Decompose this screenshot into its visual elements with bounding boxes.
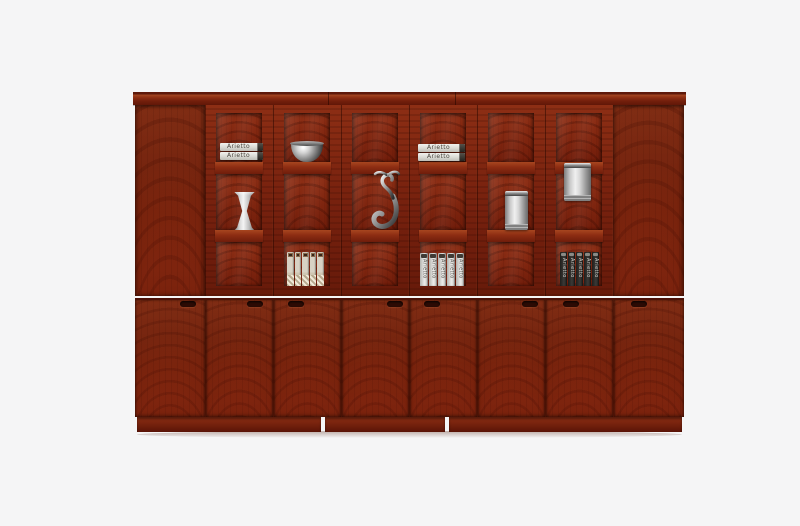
glass-door-1	[205, 105, 273, 296]
door-handle	[288, 301, 304, 307]
shelf-rail	[419, 230, 467, 242]
glass-pane	[556, 174, 602, 230]
plinth-segment	[449, 417, 682, 432]
glass-sheen	[488, 113, 534, 162]
glass-sheen	[216, 242, 262, 286]
glass-sheen	[556, 174, 602, 230]
shelf-rail	[487, 162, 535, 174]
lower-door-1	[135, 300, 205, 417]
glass-sheen	[284, 174, 330, 230]
glass-sheen	[420, 174, 466, 230]
glass-sheen	[216, 174, 262, 230]
lower-door-5	[409, 300, 477, 417]
glass-pane	[556, 113, 602, 162]
glass-sheen	[216, 113, 262, 162]
glass-pane	[488, 174, 534, 230]
glass-pane	[216, 113, 262, 162]
glass-pane	[216, 174, 262, 230]
door-handle	[247, 301, 263, 307]
glass-pane	[352, 174, 398, 230]
glass-sheen	[284, 242, 330, 286]
glass-sheen	[352, 174, 398, 230]
shelf-rail	[555, 162, 603, 174]
glass-sheen	[420, 113, 466, 162]
lower-door-4	[341, 300, 409, 417]
glass-pane	[556, 242, 602, 286]
upper-section	[135, 105, 684, 296]
glass-sheen	[352, 113, 398, 162]
lower-door-6	[477, 300, 545, 417]
glass-door-2	[273, 105, 341, 296]
molding-unit-seam	[328, 92, 329, 105]
shelf-rail	[215, 230, 263, 242]
glass-pane	[352, 242, 398, 286]
glass-sheen	[488, 242, 534, 286]
glass-pane	[284, 242, 330, 286]
glass-door-6	[545, 105, 613, 296]
product-photo: Arietto Arietto	[0, 0, 800, 526]
crown-molding	[133, 92, 686, 105]
glass-pane	[420, 242, 466, 286]
glass-door-5	[477, 105, 545, 296]
glass-pane	[216, 242, 262, 286]
glass-door-4	[409, 105, 477, 296]
shelf-rail	[215, 162, 263, 174]
door-handle	[180, 301, 196, 307]
glass-pane	[352, 113, 398, 162]
glass-pane	[488, 242, 534, 286]
shelf-rail	[487, 230, 535, 242]
glass-pane	[284, 174, 330, 230]
glass-sheen	[556, 113, 602, 162]
door-handle	[424, 301, 440, 307]
shelf-rail	[419, 162, 467, 174]
door-handle	[522, 301, 538, 307]
shelf-rail	[283, 162, 331, 174]
glass-door-3	[341, 105, 409, 296]
glass-pane	[420, 174, 466, 230]
glass-pane	[420, 113, 466, 162]
shelf-rail	[351, 230, 399, 242]
door-handle	[631, 301, 647, 307]
plinth-segment	[325, 417, 445, 432]
shelf-rail	[283, 230, 331, 242]
molding-unit-seam	[455, 92, 456, 105]
lower-door-2	[205, 300, 273, 417]
glass-sheen	[488, 174, 534, 230]
plinth-base	[135, 417, 684, 432]
upper-door-left	[135, 105, 205, 296]
lower-door-3	[273, 300, 341, 417]
lower-door-8	[613, 300, 684, 417]
lower-section	[135, 298, 684, 417]
upper-door-right	[613, 105, 684, 296]
glass-sheen	[556, 242, 602, 286]
glass-sheen	[420, 242, 466, 286]
glass-sheen	[352, 242, 398, 286]
shelf-rail	[351, 162, 399, 174]
plinth-segment	[137, 417, 321, 432]
glass-sheen	[284, 113, 330, 162]
glass-pane	[284, 113, 330, 162]
shelf-rail	[555, 230, 603, 242]
floor-shadow	[137, 431, 682, 438]
door-handle	[563, 301, 579, 307]
door-handle	[387, 301, 403, 307]
lower-door-7	[545, 300, 613, 417]
bookcase-cabinet: Arietto Arietto	[135, 92, 684, 432]
glass-pane	[488, 113, 534, 162]
